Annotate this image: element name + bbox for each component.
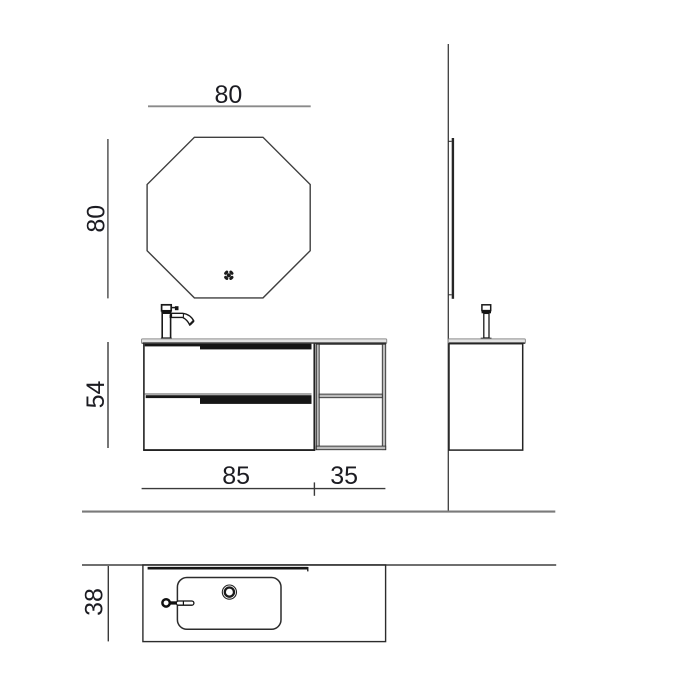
svg-text:38: 38 [81, 588, 109, 616]
svg-text:80: 80 [82, 205, 110, 233]
svg-text:85: 85 [222, 462, 250, 490]
svg-text:35: 35 [330, 462, 358, 490]
svg-text:80: 80 [214, 81, 242, 109]
svg-text:54: 54 [82, 381, 110, 409]
